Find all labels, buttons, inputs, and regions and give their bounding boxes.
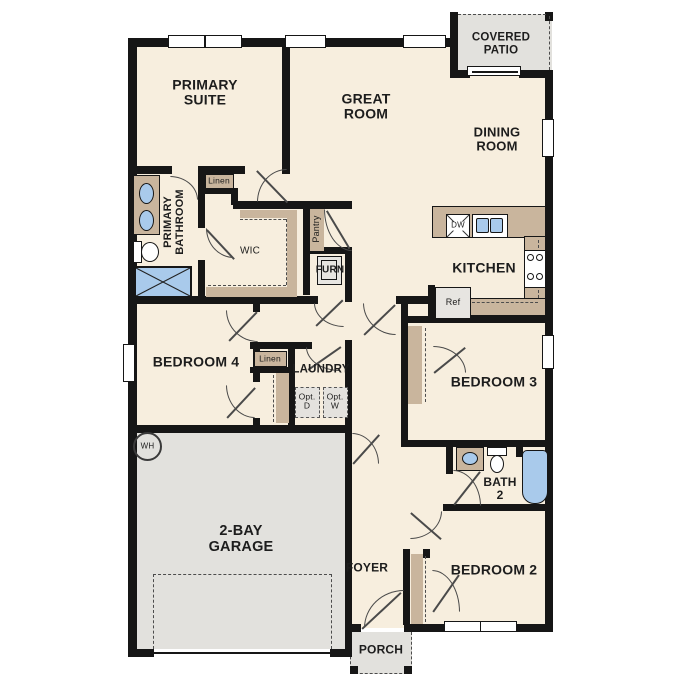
wall xyxy=(253,418,260,425)
dishwasher: DW xyxy=(446,214,470,238)
label-furnace: FURN xyxy=(316,265,345,276)
room-label-foyer: FOYER xyxy=(346,561,388,574)
room-label-great-room: GREAT ROOM xyxy=(342,92,391,123)
wall xyxy=(128,649,154,657)
window xyxy=(444,621,481,632)
sink-basin xyxy=(476,218,489,233)
patio-edge-dashed xyxy=(458,14,546,15)
vanity-sink xyxy=(139,210,154,231)
window xyxy=(480,621,517,632)
wic-rod-dashed xyxy=(286,219,287,285)
room-label-bedroom-2: BEDROOM 2 xyxy=(451,562,538,577)
vanity-sink xyxy=(462,452,478,465)
floor-plan: DW Ref xyxy=(0,0,687,687)
closet-label-pantry: Pantry xyxy=(312,215,322,242)
wic-rod-dashed xyxy=(240,219,286,220)
burner-icon xyxy=(527,273,534,280)
wic-shelf xyxy=(206,287,297,297)
closet-rod-dashed xyxy=(425,328,426,402)
wall xyxy=(446,447,453,474)
window xyxy=(205,35,242,48)
wall xyxy=(401,296,408,447)
wall xyxy=(401,316,546,323)
room-label-covered-patio: COVERED PATIO xyxy=(472,31,530,56)
wall xyxy=(282,38,290,174)
closet-rod-dashed xyxy=(425,556,426,622)
vanity-sink xyxy=(139,183,154,204)
window xyxy=(285,35,326,48)
toilet-bowl xyxy=(490,455,504,473)
garage-door-dashed xyxy=(153,574,332,649)
room-label-bedroom-4: BEDROOM 4 xyxy=(153,354,240,369)
upper-cabinet-dashed xyxy=(472,302,538,303)
wall xyxy=(250,342,312,349)
refrigerator: Ref xyxy=(435,287,471,319)
wall xyxy=(345,251,352,302)
closet-label-linen: Linen xyxy=(208,176,230,185)
range-stove xyxy=(524,250,546,288)
wall xyxy=(128,425,352,433)
room-label-garage: 2-BAY GARAGE xyxy=(209,524,274,556)
label-opt-washer: Opt. W xyxy=(327,393,344,412)
dishwasher-label: DW xyxy=(450,222,466,231)
room-label-laundry: LAUNDRY xyxy=(292,364,349,377)
shower-x-icon xyxy=(136,268,190,296)
burner-icon xyxy=(536,254,543,261)
kitchen-counter xyxy=(468,298,546,316)
kitchen-sink xyxy=(472,214,508,238)
refrigerator-label: Ref xyxy=(446,298,461,308)
closet-label-linen-2: Linen xyxy=(259,354,281,363)
patio-wall xyxy=(450,12,458,78)
wall xyxy=(428,285,435,316)
porch-post xyxy=(404,666,412,674)
window xyxy=(168,35,205,48)
garage-door-sill xyxy=(154,652,330,654)
shower xyxy=(134,266,192,298)
window xyxy=(542,335,554,369)
closet-rod-dashed xyxy=(273,375,274,422)
room-label-bath-2: BATH 2 xyxy=(483,476,516,502)
bedroom2-closet-shelf xyxy=(411,554,423,624)
patio-edge-dashed xyxy=(549,16,550,70)
toilet-bowl xyxy=(141,242,159,262)
bedroom4-closet-shelf xyxy=(276,373,289,423)
wall xyxy=(288,349,295,425)
wall xyxy=(403,549,410,625)
wic-rod-dashed xyxy=(208,285,286,286)
room-label-bedroom-3: BEDROOM 3 xyxy=(451,374,538,389)
room-label-primary-bathroom: PRIMARY BATHROOM xyxy=(162,189,186,255)
patio-wall xyxy=(519,70,552,78)
wall xyxy=(200,166,245,174)
wall xyxy=(128,166,172,174)
room-label-dining-room: DINING ROOM xyxy=(474,126,521,155)
room-label-wic: WIC xyxy=(240,246,260,257)
slider-rail xyxy=(472,71,518,73)
label-opt-dryer: Opt. D xyxy=(299,393,316,412)
wall xyxy=(198,166,205,228)
burner-icon xyxy=(527,254,534,261)
window xyxy=(542,119,554,157)
bedroom3-closet-shelf xyxy=(408,326,422,404)
sink-basin xyxy=(490,218,503,233)
label-water-heater: WH xyxy=(141,442,155,451)
patio-slider-door xyxy=(467,66,521,76)
window xyxy=(403,35,446,48)
room-label-porch: PORCH xyxy=(359,643,403,656)
bathtub xyxy=(522,450,548,504)
room-label-kitchen: KITCHEN xyxy=(452,260,516,275)
burner-icon xyxy=(536,273,543,280)
wall xyxy=(330,649,352,657)
porch-post xyxy=(350,666,358,674)
wall xyxy=(401,440,546,447)
wall xyxy=(233,201,352,209)
window xyxy=(123,344,135,382)
wic-shelf xyxy=(287,210,297,287)
room-label-primary-suite: PRIMARY SUITE xyxy=(172,78,237,109)
